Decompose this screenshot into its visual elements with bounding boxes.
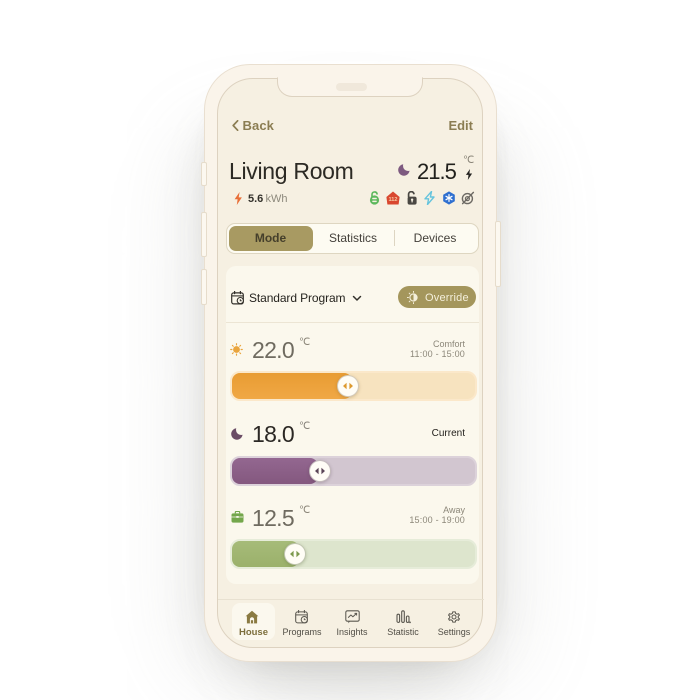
svg-text:112: 112 (389, 197, 398, 203)
